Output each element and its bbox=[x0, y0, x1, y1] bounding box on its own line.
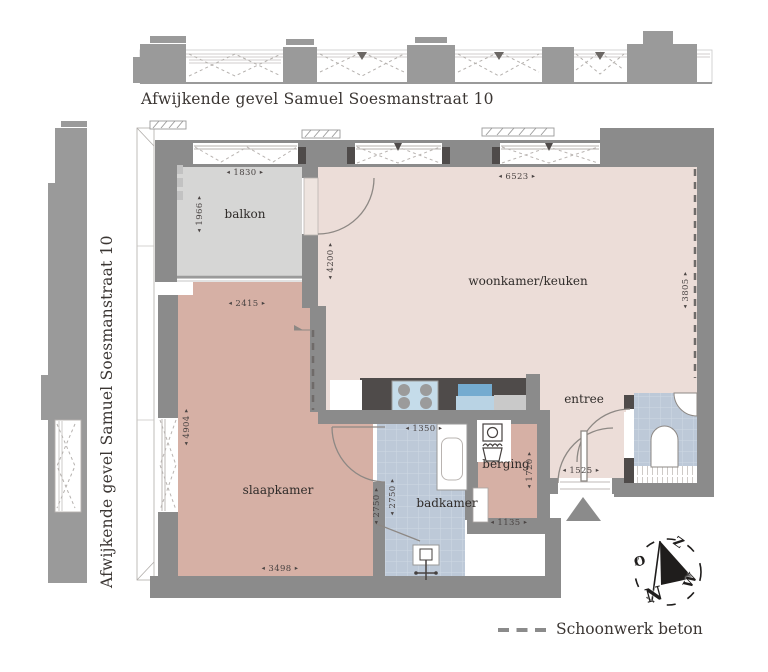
dimension-label-slaapkamer-rechts: ◂ 2750 ▸ bbox=[372, 488, 382, 525]
floor-fills bbox=[177, 163, 697, 578]
balkon-door-gap bbox=[304, 178, 318, 235]
dimension-label-woonkamer-diepte: ◂ 4200 ▸ bbox=[326, 243, 336, 280]
top-facade-elevation bbox=[133, 31, 712, 83]
stove-icon bbox=[392, 381, 438, 412]
toilet-door-gap bbox=[626, 409, 634, 458]
dimension-label-woonkamer-breedte: ◂ 6523 ▸ bbox=[499, 172, 536, 182]
room-label-entree: entree bbox=[564, 392, 604, 406]
dimension-label-balkon-breedte: ◂ 1830 ▸ bbox=[227, 168, 264, 178]
dimension-label-slaapkamer-links: ◂ 4904 ▸ bbox=[182, 409, 192, 446]
toilet-threshold bbox=[634, 466, 697, 483]
room-label-badkamer: badkamer bbox=[416, 496, 477, 510]
dimension-label-woonkamer-rechts: ◂ 3805 ▸ bbox=[681, 272, 691, 309]
dimension-label-slaapkamer-top: ◂ 2415 ▸ bbox=[229, 299, 266, 309]
slaapkamer-floor bbox=[178, 295, 310, 411]
top-facade-title: Afwijkende gevel Samuel Soesmanstraat 10 bbox=[141, 90, 494, 108]
wc-icon bbox=[651, 426, 678, 467]
sink-icon bbox=[456, 384, 494, 412]
slaapkamer-window bbox=[158, 418, 178, 512]
left-facade-elevation bbox=[41, 121, 87, 583]
balcony-railing-marks bbox=[150, 121, 554, 138]
room-label-berging: berging bbox=[482, 457, 529, 471]
kitchen-cabinet bbox=[330, 380, 362, 412]
left-facade-title: Afwijkende gevel Samuel Soesmanstraat 10 bbox=[98, 244, 116, 588]
room-label-woonkamer: woonkamer/keuken bbox=[468, 274, 587, 288]
dimension-label-badkamer-breedte: ◂ 1350 ▸ bbox=[406, 424, 443, 434]
dimension-label-berging-diepte: ◂ 1720 ▸ bbox=[525, 452, 535, 489]
kitchen-counter bbox=[330, 378, 530, 412]
entrance-arrow bbox=[566, 497, 601, 521]
dimension-label-badkamer-diepte: ◂ 2750 ▸ bbox=[388, 479, 398, 516]
gallery-slab-edge bbox=[137, 128, 154, 580]
dimension-label-balkon-diepte: ◂ 1966 ▸ bbox=[195, 196, 205, 233]
basin-icon bbox=[442, 438, 463, 480]
room-label-balkon: balkon bbox=[225, 207, 266, 221]
floorplan-page: Afwijkende gevel Samuel Soesmanstraat 10… bbox=[0, 0, 768, 672]
woonkamer-floor bbox=[318, 164, 697, 412]
dimension-label-slaapkamer-onder: ◂ 3498 ▸ bbox=[262, 564, 299, 574]
dimension-label-entree-breedte: ◂ 1525 ▸ bbox=[563, 466, 600, 476]
dimension-label-berging-breedte: ◂ 1135 ▸ bbox=[491, 518, 528, 528]
legend-label: Schoonwerk beton bbox=[556, 620, 703, 638]
room-label-slaapkamer: slaapkamer bbox=[243, 483, 314, 497]
